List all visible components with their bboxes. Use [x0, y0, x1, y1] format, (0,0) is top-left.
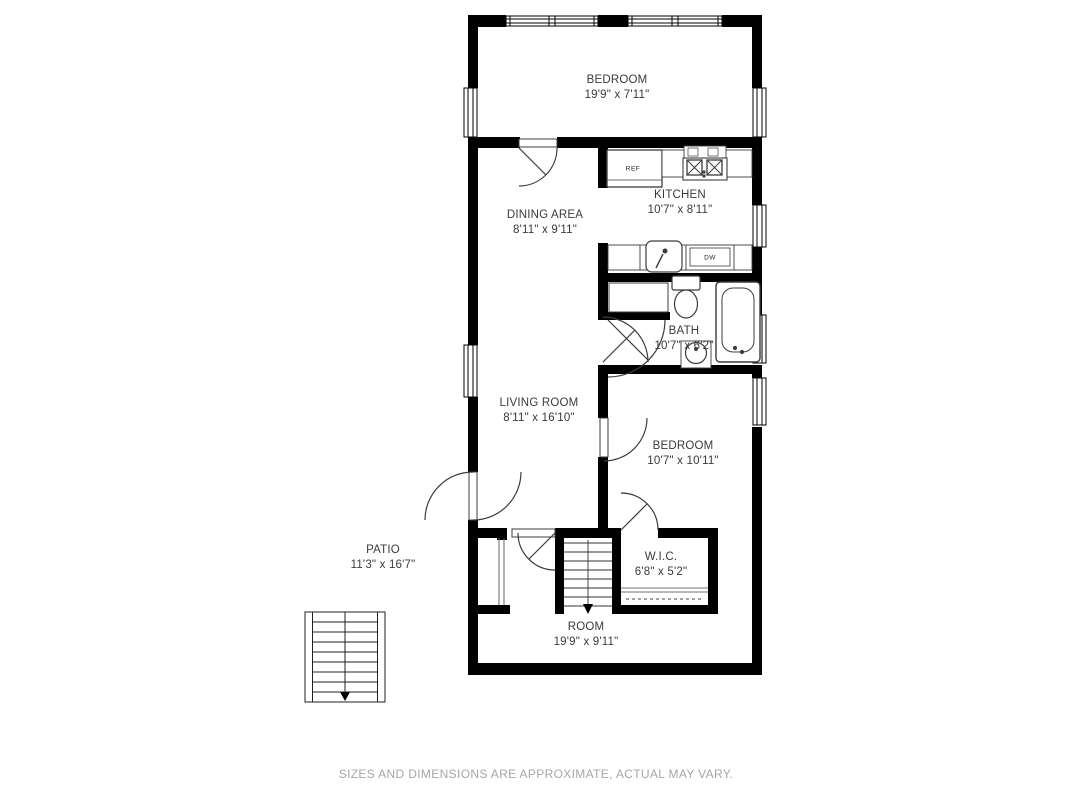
room-label-bedroom-top: BEDROOM 19'9" x 7'11" — [585, 73, 650, 103]
refrigerator-label: REF — [626, 166, 641, 173]
window-top-right — [628, 16, 722, 26]
exterior-stairs — [305, 612, 385, 702]
room-name: DINING AREA — [507, 208, 583, 223]
room-dims: 10'7" x 10'11" — [647, 454, 718, 469]
window-kitchen — [753, 205, 766, 247]
room-label-bath: BATH 10'7" x 6'2" — [654, 324, 713, 354]
stove — [683, 146, 727, 180]
room-dims: 6'8" x 5'2" — [635, 565, 687, 580]
dishwasher-label: DW — [704, 255, 716, 262]
room-dims: 11'3" x 16'7" — [351, 558, 416, 573]
patio-opening — [499, 538, 504, 605]
room-name: BEDROOM — [585, 73, 650, 88]
door-bath — [603, 317, 648, 362]
bath-fixtures — [609, 276, 760, 368]
room-label-wic: W.I.C. 6'8" x 5'2" — [635, 550, 687, 580]
door-dining — [519, 139, 557, 186]
room-dims: 8'11" x 16'10" — [500, 411, 579, 426]
disclaimer-text: SIZES AND DIMENSIONS ARE APPROXIMATE, AC… — [339, 767, 734, 781]
window-living — [464, 345, 477, 397]
window-bedroom-top-left — [464, 88, 477, 137]
toilet — [672, 276, 700, 318]
room-label-dining: DINING AREA 8'11" x 9'11" — [507, 208, 583, 238]
room-label-bedroom-2: BEDROOM 10'7" x 10'11" — [647, 439, 718, 469]
interior-stairs — [564, 540, 612, 614]
window-top-left — [506, 16, 598, 26]
room-dims: 19'9" x 7'11" — [585, 88, 650, 103]
window-bedroom-top-right — [753, 88, 766, 137]
door-room — [512, 529, 555, 570]
room-dims: 8'11" x 9'11" — [507, 223, 583, 238]
window-bedroom-2 — [753, 378, 766, 425]
room-name: BEDROOM — [647, 439, 718, 454]
door-wic-hall — [621, 493, 658, 530]
room-name: LIVING ROOM — [500, 396, 579, 411]
floor-plan: BEDROOM 19'9" x 7'11" DINING AREA 8'11" … — [0, 0, 1072, 804]
wic-shelf-rod — [621, 588, 708, 599]
room-label-patio: PATIO 11'3" x 16'7" — [351, 543, 416, 573]
room-dims: 19'9" x 9'11" — [554, 635, 619, 650]
kitchen-sink — [646, 241, 682, 272]
door-bedroom-2 — [600, 418, 647, 461]
room-dims: 10'7" x 8'11" — [648, 203, 713, 218]
room-name: ROOM — [554, 620, 619, 635]
bathtub — [716, 282, 760, 362]
room-name: W.I.C. — [635, 550, 687, 565]
bath-closet — [609, 283, 668, 312]
stairs-down-arrow — [583, 604, 593, 614]
room-label-kitchen: KITCHEN 10'7" x 8'11" — [648, 188, 713, 218]
door-entry — [425, 472, 521, 520]
room-name: PATIO — [351, 543, 416, 558]
room-label-living: LIVING ROOM 8'11" x 16'10" — [500, 396, 579, 426]
room-dims: 10'7" x 6'2" — [654, 339, 713, 354]
room-name: BATH — [654, 324, 713, 339]
room-name: KITCHEN — [648, 188, 713, 203]
room-label-room: ROOM 19'9" x 9'11" — [554, 620, 619, 650]
